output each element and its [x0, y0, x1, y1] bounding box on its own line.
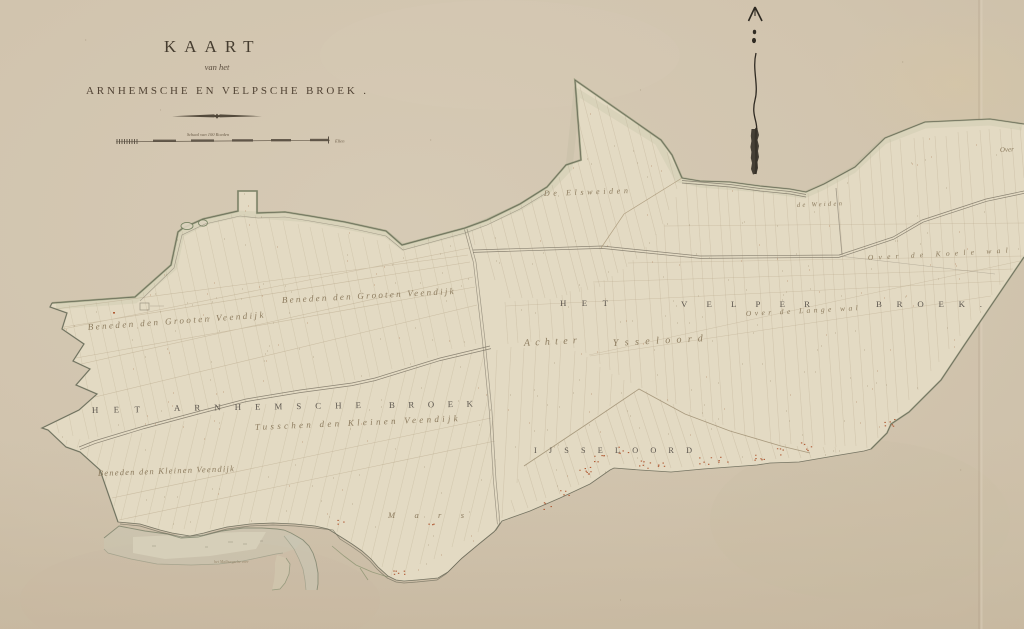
svg-text:het Malburgsche veer: het Malburgsche veer	[214, 559, 249, 564]
svg-text:Ellen: Ellen	[334, 139, 345, 144]
svg-text:Over: Over	[1000, 145, 1015, 154]
svg-text:van het: van het	[205, 62, 230, 72]
svg-text:Schaal van 100 Roeden: Schaal van 100 Roeden	[187, 132, 230, 137]
svg-text:KAART: KAART	[164, 37, 262, 56]
svg-text:ARNHEMSCHE EN VELPSCHE BROE: ARNHEMSCHE EN VELPSCHE BROEK .	[86, 85, 368, 97]
